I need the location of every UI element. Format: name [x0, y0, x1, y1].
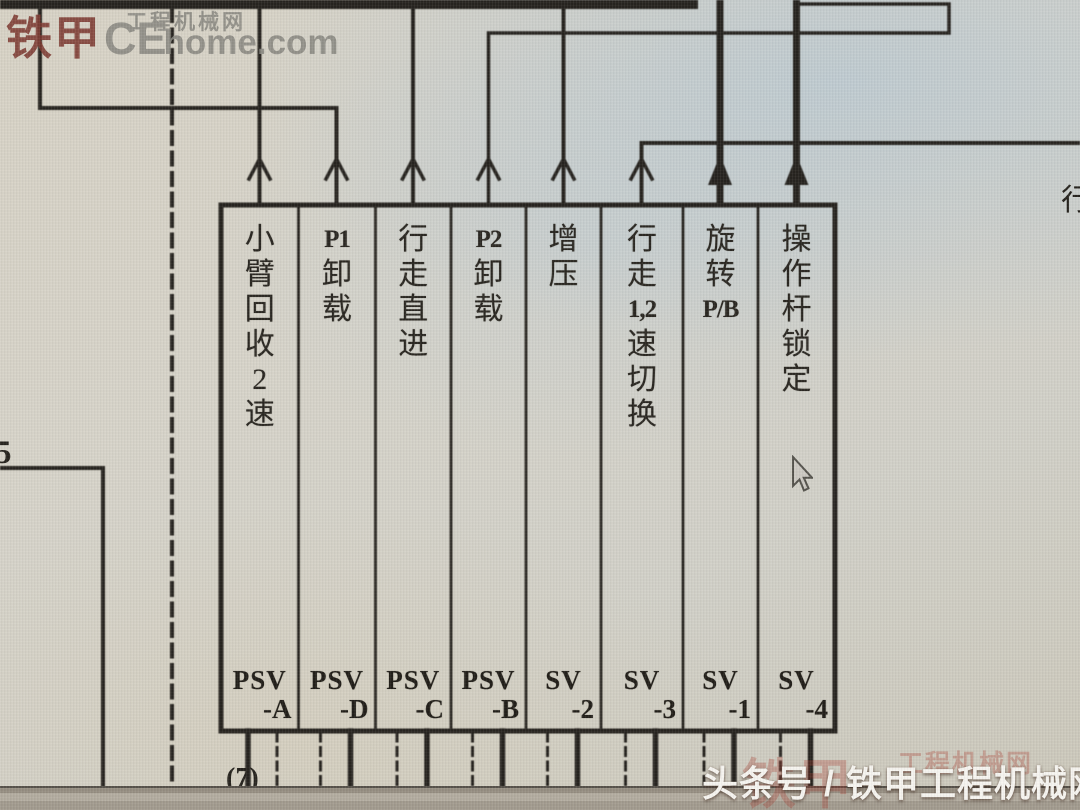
- device-type: SV: [601, 665, 683, 695]
- valve-column: 旋转P/B SV -1: [683, 205, 758, 731]
- function-label-unit: 速: [245, 397, 275, 432]
- device-suffix: -B: [451, 695, 526, 724]
- valve-function-label: 行走1,2速切换: [601, 222, 683, 432]
- function-label-unit: 压: [549, 257, 579, 292]
- function-label-unit: 进: [398, 327, 428, 362]
- manual-screen-photo: 小臂回收2速 PSV -A P1卸载 PSV -D 行走直进 PSV -C P2…: [0, 0, 1080, 810]
- valve-function-label: P1卸载: [299, 222, 376, 327]
- device-suffix: -4: [758, 695, 835, 724]
- function-label-unit: P1: [324, 222, 350, 257]
- watermark-top-left: 铁甲CEhome.com 工程机械网: [6, 2, 339, 68]
- function-label-unit: 载: [474, 292, 504, 327]
- function-label-unit: P/B: [703, 292, 739, 327]
- device-type: PSV: [376, 665, 452, 695]
- valve-column: 行走直进 PSV -C: [376, 205, 452, 731]
- valve-function-label: 小臂回收2速: [221, 222, 299, 432]
- valve-column: 小臂回收2速 PSV -A: [221, 205, 299, 731]
- function-label-unit: 行: [398, 222, 428, 257]
- function-label-unit: 走: [398, 257, 428, 292]
- device-suffix: -3: [601, 695, 683, 724]
- valve-device-label: SV -1: [683, 665, 758, 724]
- valve-function-label: P2卸载: [451, 222, 526, 327]
- device-type: PSV: [221, 665, 299, 695]
- function-label-unit: 操: [782, 222, 812, 257]
- function-label-unit: 行: [627, 222, 657, 257]
- function-label-unit: 杆: [782, 292, 812, 327]
- valve-device-label: SV -2: [526, 665, 601, 724]
- function-label-unit: 收: [245, 327, 275, 362]
- function-label-unit: 臂: [245, 257, 275, 292]
- margin-char-right-clipped: 行: [1061, 175, 1080, 219]
- mouse-cursor-icon: [787, 455, 813, 497]
- function-label-unit: 作: [782, 257, 812, 292]
- function-label-unit: 2: [252, 362, 267, 397]
- function-label-unit: 卸: [474, 257, 504, 292]
- function-label-unit: 小: [245, 222, 275, 257]
- watermark-brand: 铁甲: [6, 12, 102, 64]
- function-label-unit: P2: [476, 222, 502, 257]
- valve-column: 增压 SV -2: [526, 205, 601, 731]
- valve-function-label: 操作杆锁定: [758, 222, 835, 397]
- device-suffix: -2: [526, 695, 601, 724]
- function-label-unit: 速: [627, 327, 657, 362]
- valve-device-label: PSV -B: [451, 665, 526, 724]
- function-label-unit: 载: [322, 292, 352, 327]
- margin-number-left: 5: [0, 435, 12, 472]
- device-type: PSV: [451, 665, 526, 695]
- device-type: PSV: [299, 665, 376, 695]
- function-label-unit: 回: [245, 292, 275, 327]
- function-label-unit: 换: [627, 397, 657, 432]
- device-suffix: -D: [299, 695, 376, 724]
- function-label-unit: 锁: [782, 327, 812, 362]
- device-suffix: -C: [376, 695, 452, 724]
- function-label-unit: 切: [627, 362, 657, 397]
- function-label-unit: 旋: [706, 222, 736, 257]
- function-label-unit: 卸: [322, 257, 352, 292]
- valve-device-label: SV -4: [758, 665, 835, 724]
- device-type: SV: [758, 665, 835, 695]
- function-label-unit: 定: [782, 362, 812, 397]
- valve-column: P2卸载 PSV -B: [451, 205, 526, 731]
- function-label-unit: 走: [627, 257, 657, 292]
- device-type: SV: [683, 665, 758, 695]
- valve-device-label: PSV -D: [299, 665, 376, 724]
- valve-function-label: 旋转P/B: [683, 222, 758, 327]
- valve-device-label: PSV -A: [221, 665, 299, 724]
- valve-device-label: PSV -C: [376, 665, 452, 724]
- function-label-unit: 1,2: [628, 292, 656, 327]
- valve-device-label: SV -3: [601, 665, 683, 724]
- function-label-unit: 增: [549, 222, 579, 257]
- valve-column: P1卸载 PSV -D: [299, 205, 376, 731]
- function-label-unit: 直: [398, 292, 428, 327]
- function-label-unit: 转: [706, 257, 736, 292]
- device-suffix: -1: [683, 695, 758, 724]
- valve-function-label: 行走直进: [376, 222, 452, 362]
- watermark-site-cn: 工程机械网: [126, 6, 246, 36]
- valve-columns-container: 小臂回收2速 PSV -A P1卸载 PSV -D 行走直进 PSV -C P2…: [0, 0, 1080, 810]
- banner-text: 头条号 / 铁甲工程机械网: [702, 755, 1080, 807]
- valve-function-label: 增压: [526, 222, 601, 292]
- banner-bottom-right: 铁甲 工程机械网 头条号 / 铁甲工程机械网: [690, 740, 1080, 810]
- valve-column: 行走1,2速切换 SV -3: [601, 205, 683, 731]
- device-suffix: -A: [221, 695, 299, 724]
- device-type: SV: [526, 665, 601, 695]
